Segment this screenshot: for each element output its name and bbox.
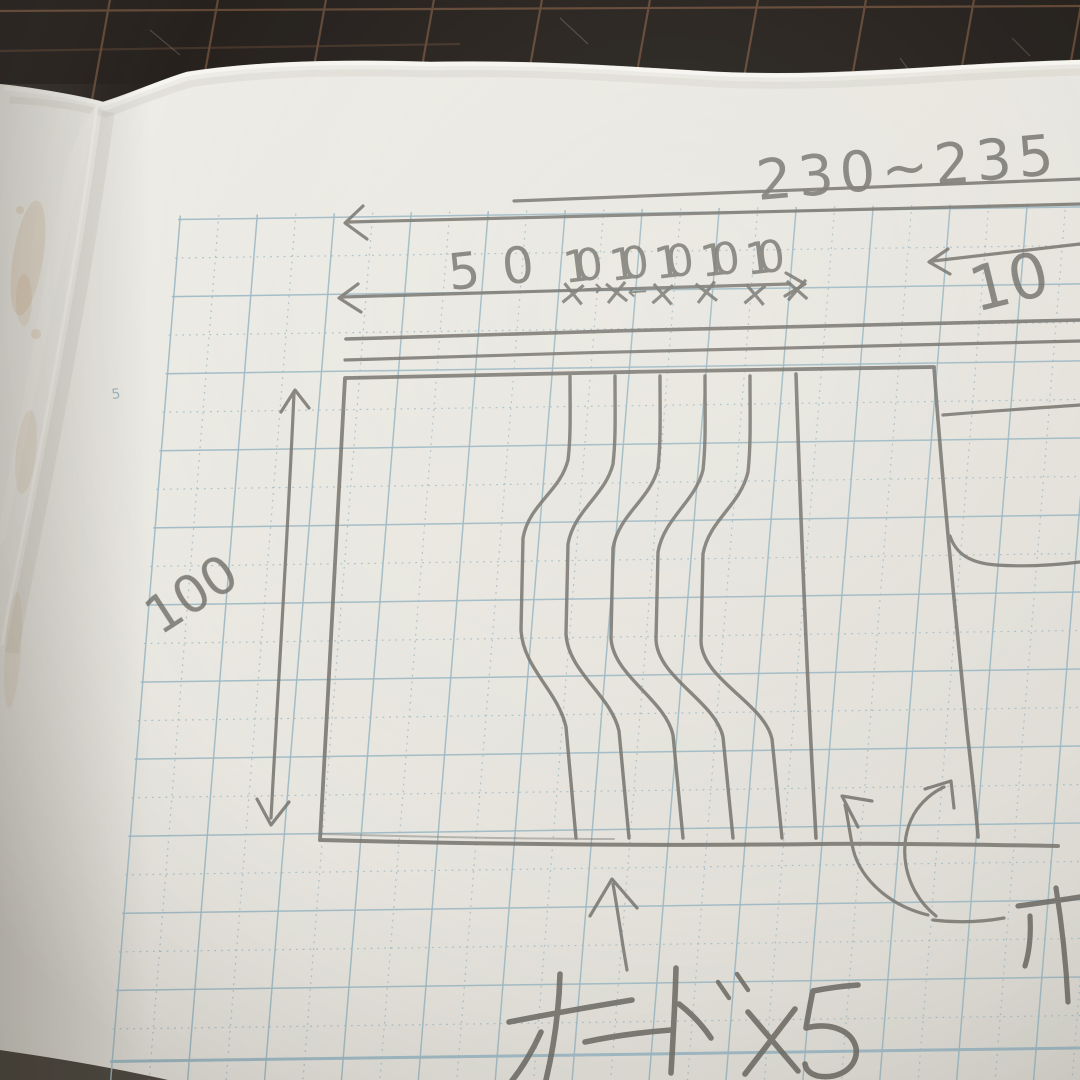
- photo-of-sketch-notebook: 5 230~235 50 10 10 10 10 10 × → × ← × × …: [0, 0, 1080, 1080]
- photo-lighting-overlay: [0, 0, 1080, 1080]
- sketch-photo-canvas: 5 230~235 50 10 10 10 10 10 × → × ← × × …: [0, 0, 1080, 1080]
